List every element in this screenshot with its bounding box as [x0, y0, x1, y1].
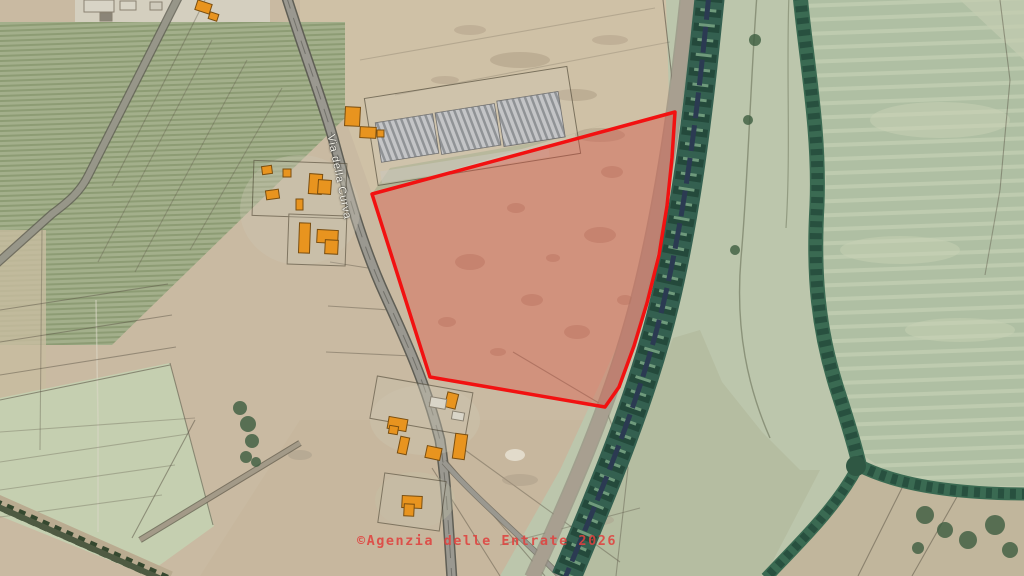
building-footprint: [360, 127, 377, 139]
building-footprint: [296, 199, 303, 210]
tree-cluster: [916, 506, 934, 524]
tree-cluster: [959, 531, 977, 549]
tree-cluster: [245, 434, 259, 448]
soil-mark: [592, 35, 628, 45]
building-footprint: [377, 130, 384, 137]
soil-mark: [431, 76, 459, 84]
map-canvas: [0, 0, 1024, 576]
tree-cluster: [912, 542, 924, 554]
building-footprint: [120, 1, 136, 10]
building-footprint: [345, 107, 361, 127]
building-footprint: [425, 446, 442, 461]
building-footprint: [451, 411, 464, 421]
building-footprint: [298, 223, 310, 253]
soil-mark: [502, 474, 538, 486]
soil-mark: [490, 52, 550, 68]
tree-cluster: [240, 451, 252, 463]
tree-cluster: [730, 245, 740, 255]
building-footprint: [388, 425, 398, 434]
soil-mark: [454, 25, 486, 35]
tree-cluster: [1002, 542, 1018, 558]
building-footprint: [325, 240, 339, 255]
building-footprint: [261, 165, 272, 174]
satellite-map: Via della Curva ©Agenzia delle Entrate 2…: [0, 0, 1024, 576]
building-footprint: [318, 180, 332, 195]
building-footprint: [265, 189, 279, 200]
building-footprint: [429, 397, 446, 410]
tree-cluster: [743, 115, 753, 125]
building-footprint: [150, 2, 162, 10]
building-footprint: [283, 169, 291, 177]
building-footprint: [100, 13, 112, 21]
tree-cluster: [233, 401, 247, 415]
tree-cluster: [240, 416, 256, 432]
tree-cluster: [251, 457, 261, 467]
building-footprint: [404, 504, 415, 517]
building-footprint: [84, 0, 114, 12]
soil-mark: [505, 449, 525, 461]
attribution-watermark: ©Agenzia delle Entrate 2026: [357, 533, 617, 549]
tree-cluster: [749, 34, 761, 46]
tree-cluster: [937, 522, 953, 538]
tree-cluster: [985, 515, 1005, 535]
